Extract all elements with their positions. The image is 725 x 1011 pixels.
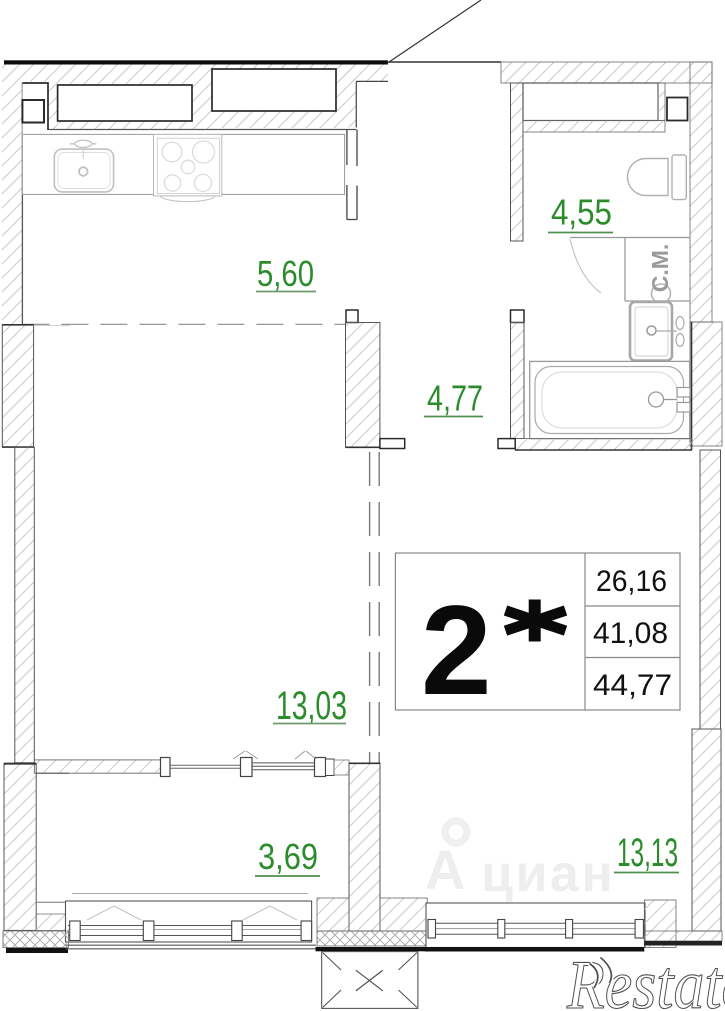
svg-text:13,13: 13,13 bbox=[617, 831, 678, 875]
svg-text:циан: циан bbox=[481, 845, 615, 903]
svg-text:13,03: 13,03 bbox=[276, 684, 347, 728]
svg-text:4,77: 4,77 bbox=[427, 378, 483, 419]
svg-text:26,16: 26,16 bbox=[596, 565, 667, 598]
svg-text:2: 2 bbox=[421, 579, 492, 721]
svg-text:4,55: 4,55 bbox=[551, 192, 612, 233]
svg-text:3,69: 3,69 bbox=[258, 836, 318, 877]
svg-text:А: А bbox=[425, 838, 465, 901]
svg-text:41,08: 41,08 bbox=[593, 617, 668, 650]
svg-text:Restate: Restate bbox=[566, 947, 725, 1011]
svg-text:С.М.: С.М. bbox=[647, 244, 673, 293]
svg-text:44,77: 44,77 bbox=[593, 669, 672, 702]
svg-text:5,60: 5,60 bbox=[257, 253, 314, 294]
